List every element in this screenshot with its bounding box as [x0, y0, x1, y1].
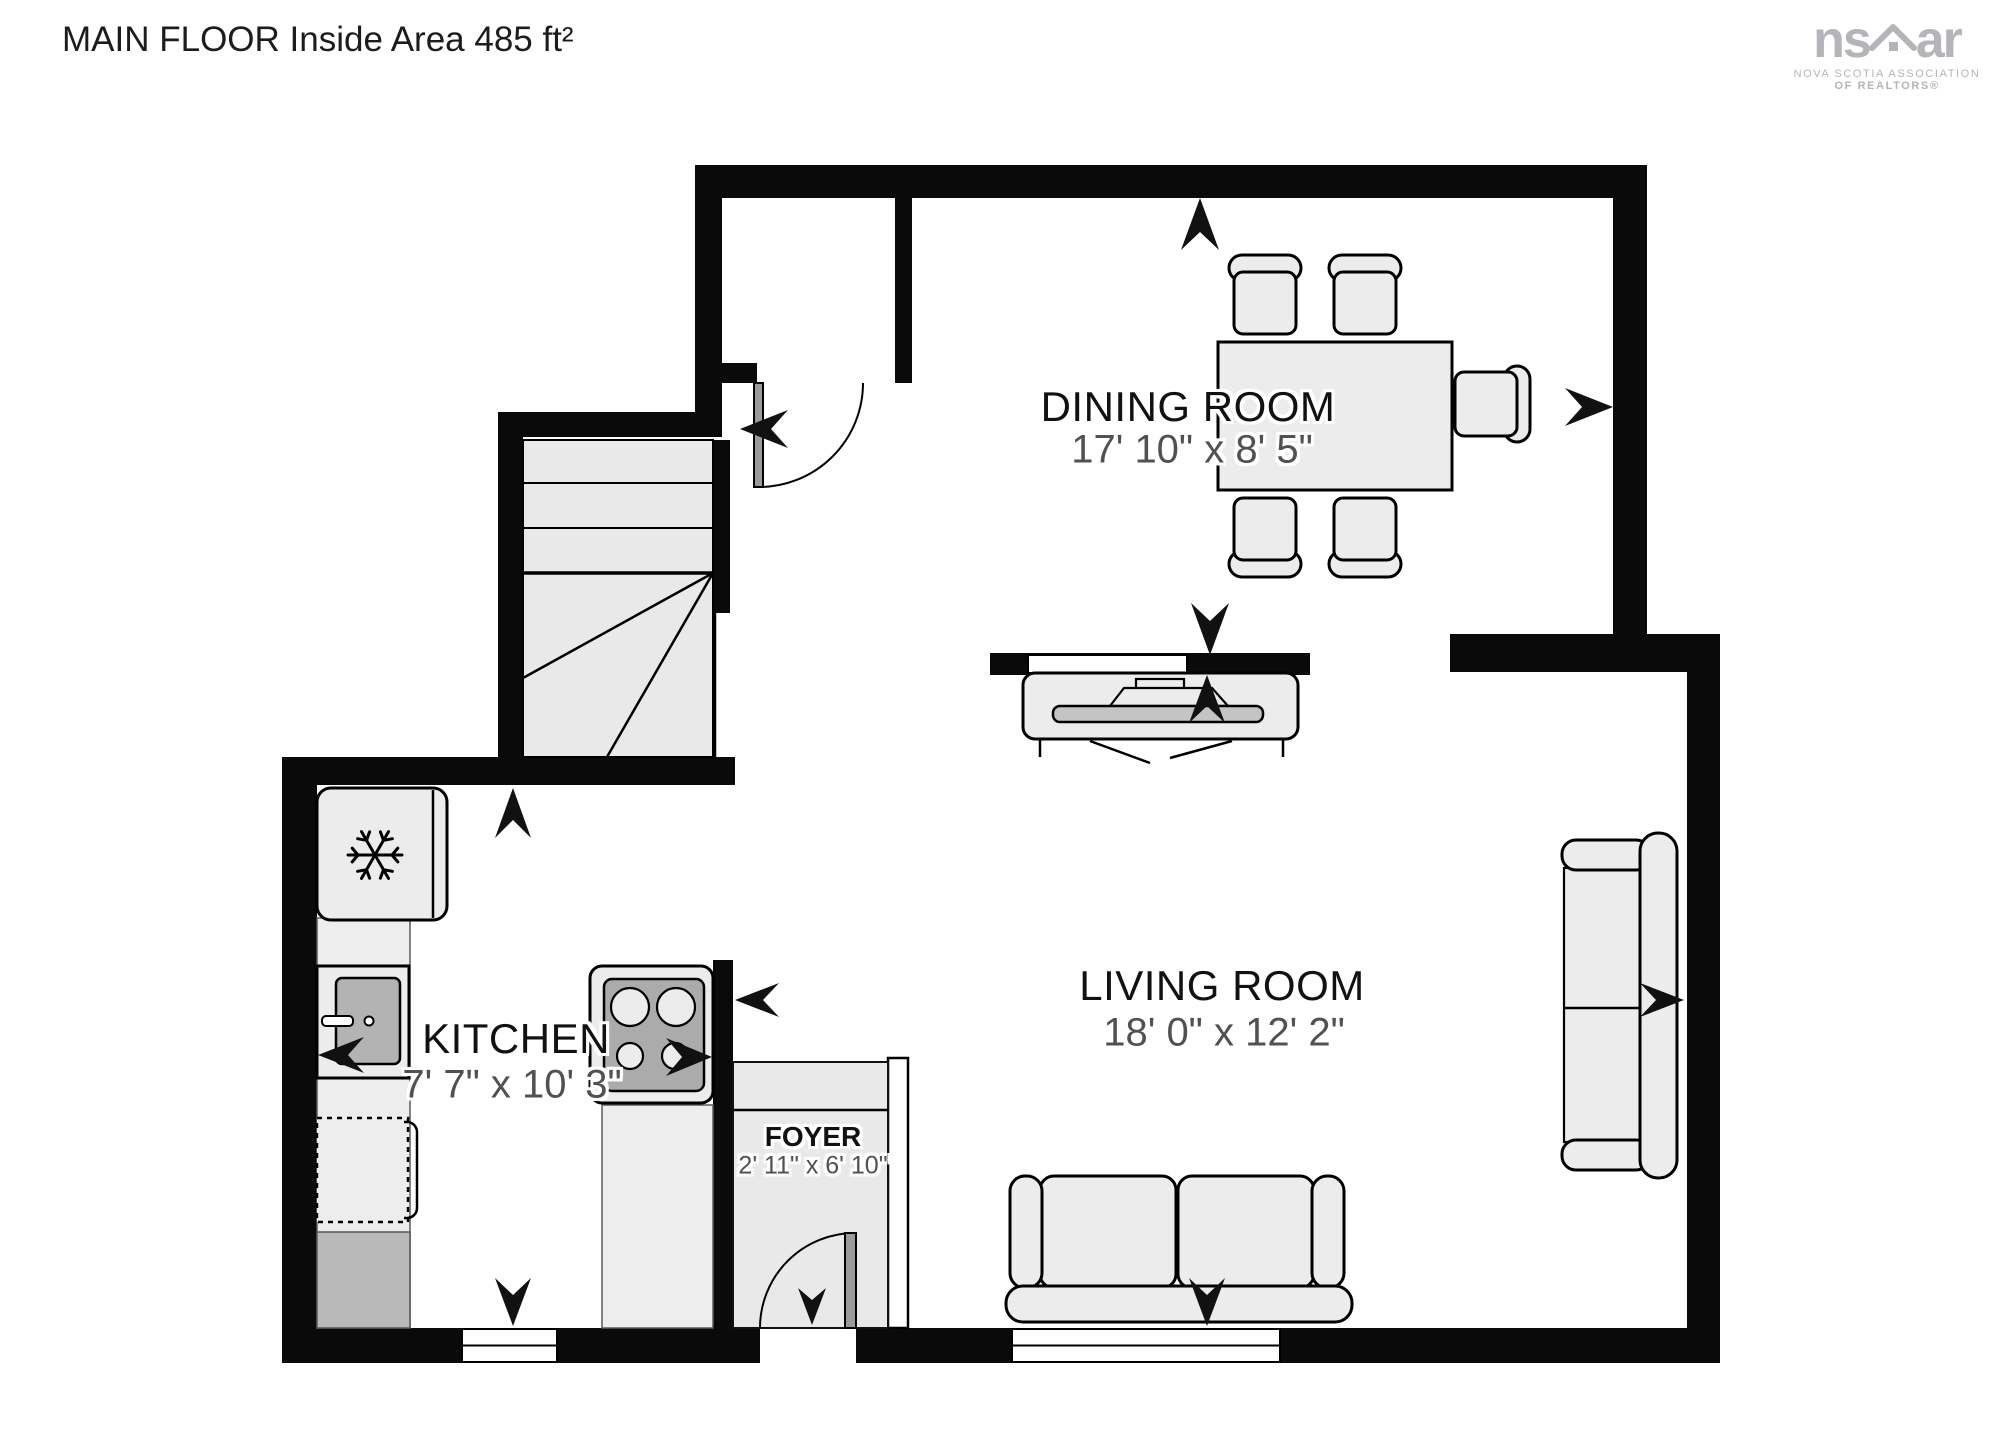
logo-ar-text: ar	[1916, 14, 1961, 66]
arrow-down-icon	[495, 1278, 531, 1326]
kitchen-dims: 7' 7" x 10' 3"	[402, 1063, 621, 1108]
dining-chair	[1455, 366, 1530, 442]
foyer-floor	[733, 1062, 888, 1328]
living-room-dims: 18' 0" x 12' 2"	[1103, 1011, 1345, 1056]
burner	[657, 988, 695, 1026]
floorplan-drawing	[0, 0, 2000, 1451]
wall-foyer-left	[713, 960, 733, 1328]
dining-chair	[1329, 255, 1401, 334]
wall-stairs-top	[498, 412, 722, 437]
floorplan-page: MAIN FLOOR Inside Area 485 ft² DINING RO…	[0, 0, 2000, 1451]
kitchen-cabinet-bottom	[602, 1105, 713, 1328]
tv-screen	[1053, 706, 1263, 722]
wall-stairs-right	[713, 440, 730, 613]
wall-closet-stub	[722, 363, 757, 383]
kitchen-sink	[317, 966, 409, 1078]
foyer-railing	[888, 1058, 908, 1328]
armrest	[1562, 840, 1650, 870]
foyer-dims: 2' 11" x 6' 10"	[738, 1152, 887, 1181]
fridge	[317, 788, 447, 920]
logo-ns-text: ns	[1813, 14, 1870, 66]
window-living	[1012, 1329, 1280, 1362]
page-title: MAIN FLOOR Inside Area 485 ft²	[62, 20, 574, 60]
arrow-down-icon	[1191, 603, 1229, 655]
stairs	[523, 440, 715, 757]
dining-room-label: DINING ROOM	[1041, 383, 1336, 431]
wall-stairs-left	[498, 412, 523, 785]
logo-line2: OF REALTORS®	[1792, 80, 1982, 92]
wall-right-step	[1450, 634, 1720, 672]
kitchen-counter-dark	[317, 1232, 410, 1328]
armrest	[1010, 1176, 1042, 1288]
dining-room-dims: 17' 10" x 8' 5"	[1071, 428, 1313, 473]
wall-closet-right	[895, 198, 912, 383]
nsar-logo: ns ar NOVA SCOTIA ASSOCIATION OF REALTOR…	[1792, 14, 1982, 92]
living-room-label: LIVING ROOM	[1079, 962, 1365, 1010]
back-cushion	[1178, 1176, 1314, 1288]
foyer-area	[733, 1062, 888, 1328]
armrest	[1562, 1140, 1650, 1170]
wall-upper-left	[695, 165, 722, 437]
logo-line1: NOVA SCOTIA ASSOCIATION	[1792, 68, 1982, 80]
wall-right-lower	[1687, 634, 1720, 1363]
house-icon	[1869, 20, 1917, 64]
kitchen-label: KITCHEN	[422, 1015, 610, 1063]
back-cushion	[1040, 1176, 1176, 1288]
window-kitchen	[462, 1329, 557, 1362]
dining-chair	[1329, 498, 1401, 577]
faucet-icon	[322, 1016, 353, 1026]
sofa-bottom	[1006, 1176, 1352, 1322]
media-wall-passthrough	[1028, 655, 1187, 673]
arrow-up-icon	[1181, 198, 1219, 250]
wall-kitchen-left	[282, 757, 317, 1363]
wall-right-upper	[1613, 165, 1647, 672]
arrow-up-icon	[495, 788, 531, 838]
walls	[282, 165, 1720, 1363]
sofa-seat	[1006, 1286, 1352, 1322]
wall-top	[695, 165, 1647, 198]
armrest	[1312, 1176, 1344, 1288]
foyer-label: FOYER	[765, 1121, 861, 1153]
entry-door-opening	[760, 1328, 856, 1363]
dining-chair	[1229, 498, 1301, 577]
door-leaf	[845, 1233, 856, 1328]
arrow-right-icon	[1565, 388, 1613, 426]
burner	[611, 988, 649, 1026]
dining-chair	[1229, 255, 1301, 334]
dishwasher	[317, 1118, 417, 1222]
media-console	[1023, 673, 1298, 763]
wall-kitchen-top	[282, 757, 735, 785]
arrow-left-icon	[735, 983, 779, 1017]
